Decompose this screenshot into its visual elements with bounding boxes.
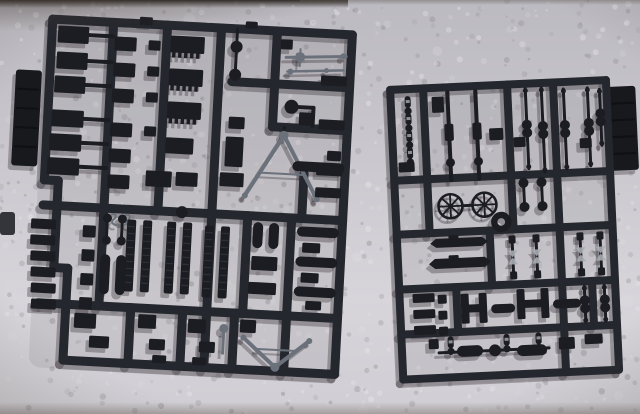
photo-of-model-kit-sprues bbox=[0, 0, 640, 414]
scene-svg bbox=[0, 0, 640, 414]
photo-vignette bbox=[0, 0, 640, 414]
